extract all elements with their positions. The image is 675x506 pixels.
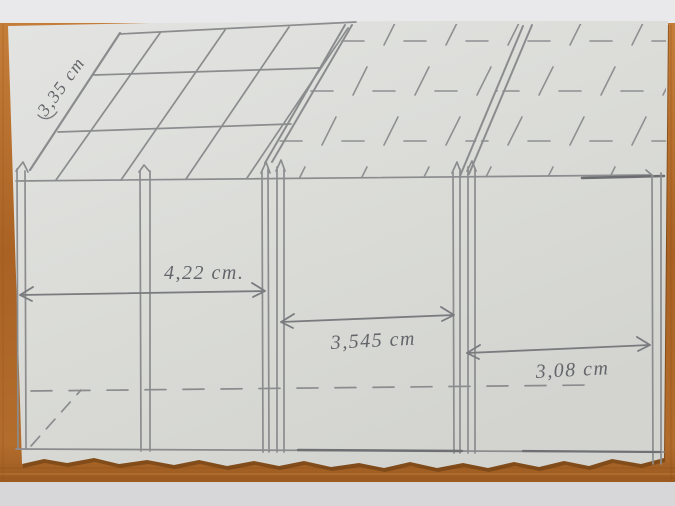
background-bottom — [0, 482, 675, 506]
sketch-photo-canvas: 3,35 cm 4,22 cm. 3,545 cm 3,08 cm — [0, 0, 675, 506]
dimension-label-middle-bay: 3,545 cm — [329, 328, 416, 354]
dimension-label-right-bay: 3,08 cm — [534, 357, 610, 383]
photo-of-sketch: 3,35 cm 4,22 cm. 3,545 cm 3,08 cm — [0, 0, 675, 506]
dimension-label-left-bay: 4,22 cm. — [164, 262, 244, 284]
